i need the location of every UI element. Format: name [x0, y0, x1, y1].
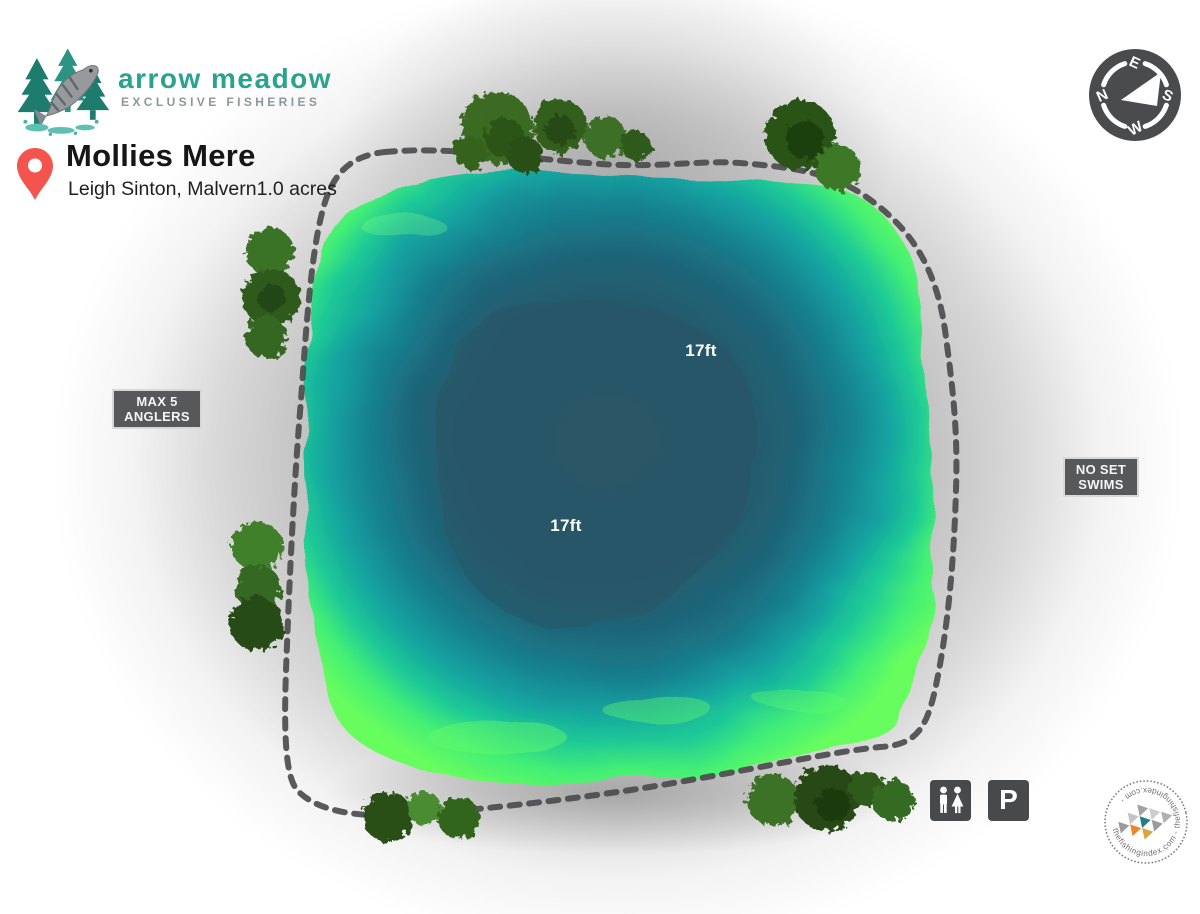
no-set-swims-badge: NO SET SWIMS [1063, 457, 1139, 497]
max-anglers-line1: MAX 5 [119, 394, 195, 409]
tree-cluster-left-upper [243, 228, 301, 358]
map-canvas: arrow meadow EXCLUSIVE FISHERIES Mollies… [0, 0, 1200, 914]
compass-rose-icon: E N S W [1088, 48, 1182, 142]
depth-label: 17ft [550, 516, 581, 536]
brand-name: arrow meadow [118, 63, 332, 95]
venue-size: 1.0 acres [257, 178, 337, 200]
parking-icon: P [988, 780, 1029, 821]
fish-jumping-with-pines-icon [8, 40, 114, 136]
venue-location: Leigh Sinton, Malvern [68, 178, 257, 200]
venue-title: Mollies Mere [66, 138, 256, 174]
no-set-swims-line1: NO SET [1070, 462, 1132, 477]
tree-cluster-bottom-right [747, 765, 914, 831]
toilets-icon [930, 780, 971, 821]
no-set-swims-line2: SWIMS [1070, 477, 1132, 492]
location-pin-icon [16, 146, 54, 202]
parking-label: P [999, 784, 1018, 815]
tree-cluster-bottom [363, 791, 480, 842]
lake-depth-map [307, 173, 934, 785]
tree-cluster-left-lower [230, 521, 284, 651]
max-anglers-badge: MAX 5 ANGLERS [112, 389, 202, 429]
venue-subtitle: Leigh Sinton, Malvern1.0 acres [68, 178, 337, 201]
max-anglers-line2: ANGLERS [119, 409, 195, 424]
tree-cluster-top-right [765, 100, 861, 191]
thefishingindex-stamp: thefishingindex.com - thefishingindex.co… [1098, 774, 1194, 870]
depth-label: 17ft [685, 341, 716, 361]
brand-tagline: EXCLUSIVE FISHERIES [121, 95, 320, 109]
